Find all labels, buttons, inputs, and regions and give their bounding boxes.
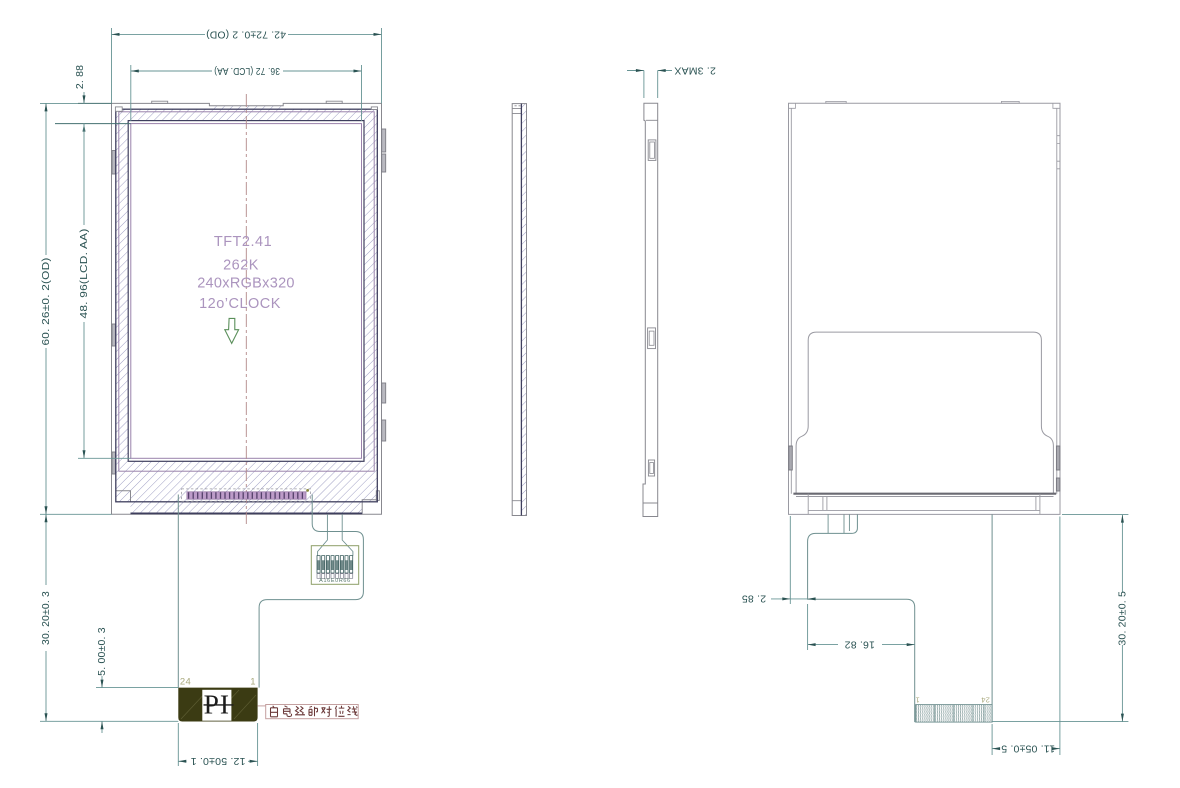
svg-text:12o’CLOCK: 12o’CLOCK <box>199 296 281 312</box>
svg-text:30. 20±0. 5: 30. 20±0. 5 <box>1117 591 1129 646</box>
svg-text:60. 26±0. 2(OD): 60. 26±0. 2(OD) <box>40 258 52 346</box>
svg-text:262K: 262K <box>223 257 259 273</box>
svg-text:2. 85: 2. 85 <box>742 593 766 605</box>
svg-text:24: 24 <box>180 677 191 688</box>
svg-text:1: 1 <box>250 677 256 688</box>
svg-text:48. 96(LCD. AA): 48. 96(LCD. AA) <box>78 229 90 319</box>
svg-text:2. 3MAX: 2. 3MAX <box>674 64 716 76</box>
svg-text:12. 50±0. 1: 12. 50±0. 1 <box>191 755 246 767</box>
svg-text:PI: PI <box>204 689 230 720</box>
svg-text:TFT2.41: TFT2.41 <box>214 234 272 250</box>
svg-text:2. 88: 2. 88 <box>74 65 86 89</box>
svg-text:240xRGBx320: 240xRGBx320 <box>197 275 295 291</box>
svg-text:5. 00±0. 3: 5. 00±0. 3 <box>96 627 108 676</box>
svg-text:42. 72±0. 2 (OD): 42. 72±0. 2 (OD) <box>206 28 286 40</box>
svg-text:24: 24 <box>981 696 990 705</box>
svg-text:30. 20±0. 3: 30. 20±0. 3 <box>40 591 52 645</box>
svg-text:36. 72 (LCD. AA): 36. 72 (LCD. AA) <box>214 65 280 77</box>
svg-text:16. 82: 16. 82 <box>844 638 874 650</box>
svg-text:A16E0R66: A16E0R66 <box>319 578 351 584</box>
svg-text:1: 1 <box>915 696 919 705</box>
svg-text:11. 05±0. 5: 11. 05±0. 5 <box>1001 742 1055 754</box>
